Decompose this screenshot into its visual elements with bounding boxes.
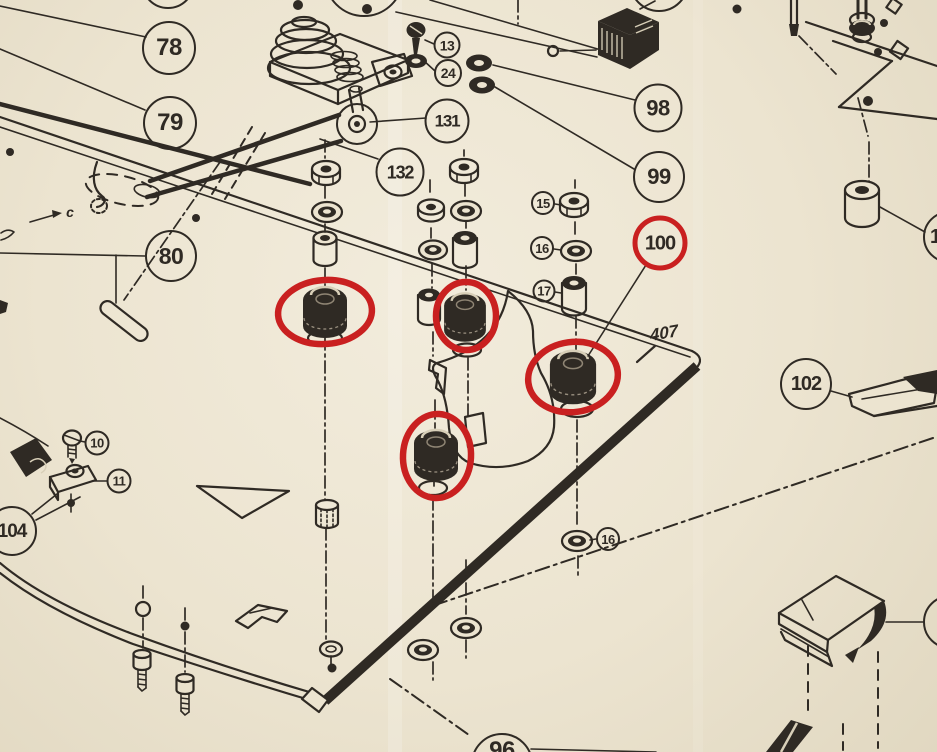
detail-letter-label: c <box>66 205 74 219</box>
spacer <box>562 276 586 316</box>
washer <box>408 640 438 660</box>
grommet <box>303 287 347 338</box>
pcb-assembly <box>789 0 937 227</box>
grommets <box>303 287 596 495</box>
washer <box>562 531 592 551</box>
washer <box>312 202 342 222</box>
misc-dots <box>6 0 742 673</box>
balloon-13: 13 <box>434 32 461 59</box>
spacer <box>845 181 879 227</box>
screw <box>63 431 81 465</box>
plate-part-number-label: 407 <box>649 322 678 344</box>
connector-block <box>396 0 659 69</box>
balloon-80: 80 <box>145 230 197 282</box>
balloon-10: 10 <box>85 431 110 456</box>
cap-screw <box>134 650 151 691</box>
balloon-11: 11 <box>107 469 132 494</box>
balloon-132: 132 <box>376 148 425 197</box>
exploded-parts-diagram: 78 79 80 131 132 13 24 98 99 100 102 104… <box>0 0 937 752</box>
cap-screw <box>177 674 194 715</box>
hex-nut <box>418 200 444 222</box>
washer <box>451 618 481 638</box>
spacer <box>314 232 337 267</box>
grommet <box>444 293 486 341</box>
balloon-99: 99 <box>633 151 685 203</box>
chassis-plate <box>0 117 700 712</box>
balloon-15: 15 <box>531 191 555 215</box>
left-parts <box>0 162 107 512</box>
balloon-24: 24 <box>434 59 462 87</box>
balloon-131: 131 <box>425 99 470 144</box>
balloon-79: 79 <box>143 96 197 150</box>
balloon-16: 16 <box>530 236 554 260</box>
grommet <box>414 430 458 481</box>
balloon-100-highlighted: 100 <box>633 216 688 271</box>
hex-nut <box>312 161 340 185</box>
switch-block <box>766 576 886 752</box>
bottom-screws <box>134 586 288 715</box>
balloon-17: 17 <box>533 280 556 303</box>
balloon-98: 98 <box>634 84 683 133</box>
washer <box>419 241 447 260</box>
hex-nut <box>560 193 588 217</box>
balloon-102: 102 <box>780 358 832 410</box>
hex-nut <box>450 159 478 183</box>
balloon-16-lower: 16 <box>596 527 620 551</box>
spacer <box>453 231 477 268</box>
knurled-nut <box>316 500 338 528</box>
washer <box>451 201 481 221</box>
part-102-blade <box>849 370 937 416</box>
balloon-78: 78 <box>142 21 196 75</box>
centerlines <box>390 438 933 735</box>
grommet <box>550 351 596 405</box>
washer <box>561 241 591 261</box>
